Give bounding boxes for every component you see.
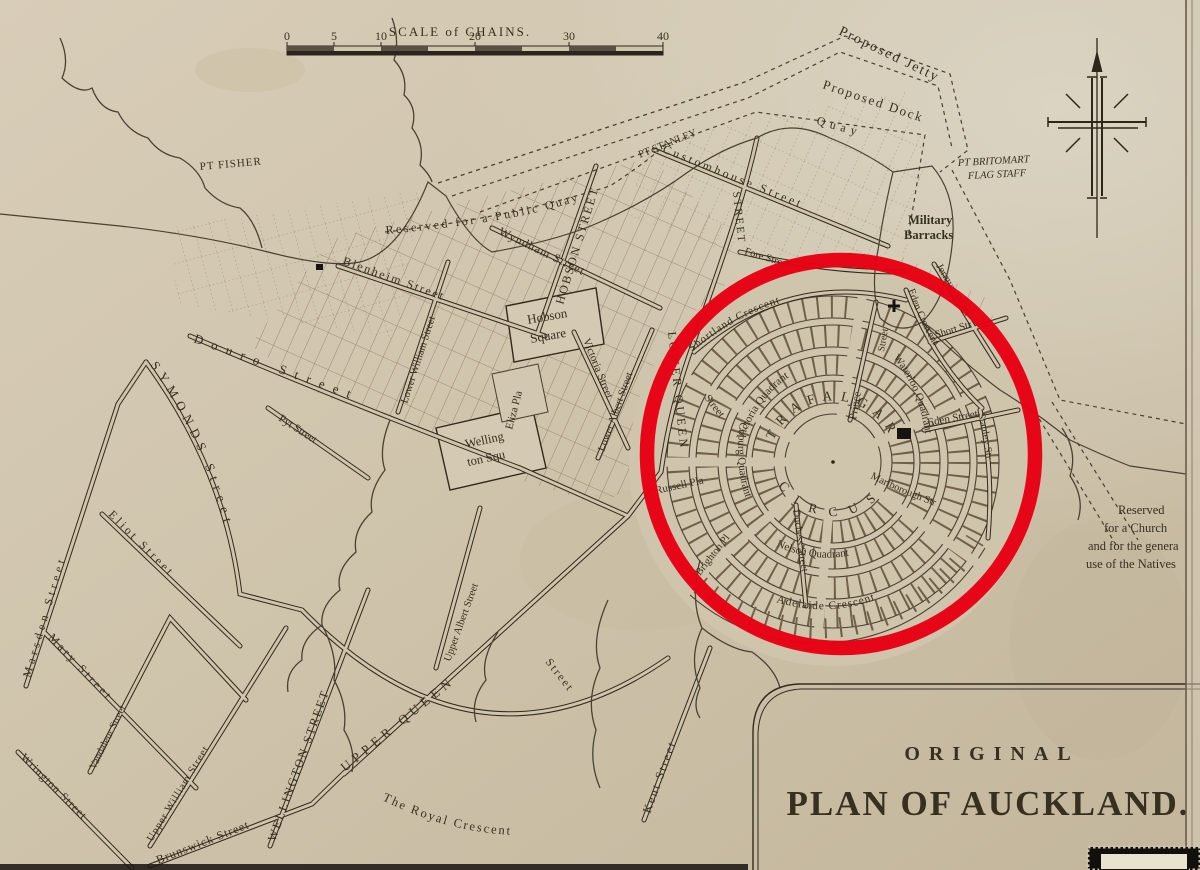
scale-tick-30: 30 <box>563 29 575 43</box>
scale-bar-title: SCALE of CHAINS. <box>389 24 531 39</box>
map-title-line2: PLAN OF AUCKLAND. <box>786 784 1189 823</box>
map-title-line1: ORIGINAL <box>904 743 1079 765</box>
label-native-reserve-1: Reserved <box>1118 503 1165 517</box>
paper-stain <box>1010 520 1190 760</box>
bottom-dark-strip <box>0 864 748 870</box>
scale-tick-20: 20 <box>469 29 481 43</box>
label-native-reserve-2: for a Church <box>1104 521 1168 535</box>
scale-tick-40: 40 <box>657 29 669 43</box>
scale-tick-5: 5 <box>331 29 337 43</box>
historical-map-plan-of-auckland: PT FISHER PT STANLEY PT BRITOMART FLAG S… <box>0 0 1200 870</box>
circus-center-dot <box>831 460 835 464</box>
label-military-barracks-1: Military <box>908 213 953 227</box>
label-native-reserve-4: use of the Natives <box>1086 557 1176 571</box>
archive-stamp <box>1088 847 1200 870</box>
scale-tick-10: 10 <box>375 29 387 43</box>
building-symbol <box>316 264 323 270</box>
right-margin-band <box>1186 0 1200 870</box>
scale-tick-0: 0 <box>284 29 290 43</box>
label-military-barracks-2: Barracks <box>904 228 953 242</box>
map-canvas: PT FISHER PT STANLEY PT BRITOMART FLAG S… <box>0 0 1200 870</box>
stamp-inner <box>1100 853 1188 870</box>
label-native-reserve-3: and for the genera <box>1088 539 1179 553</box>
